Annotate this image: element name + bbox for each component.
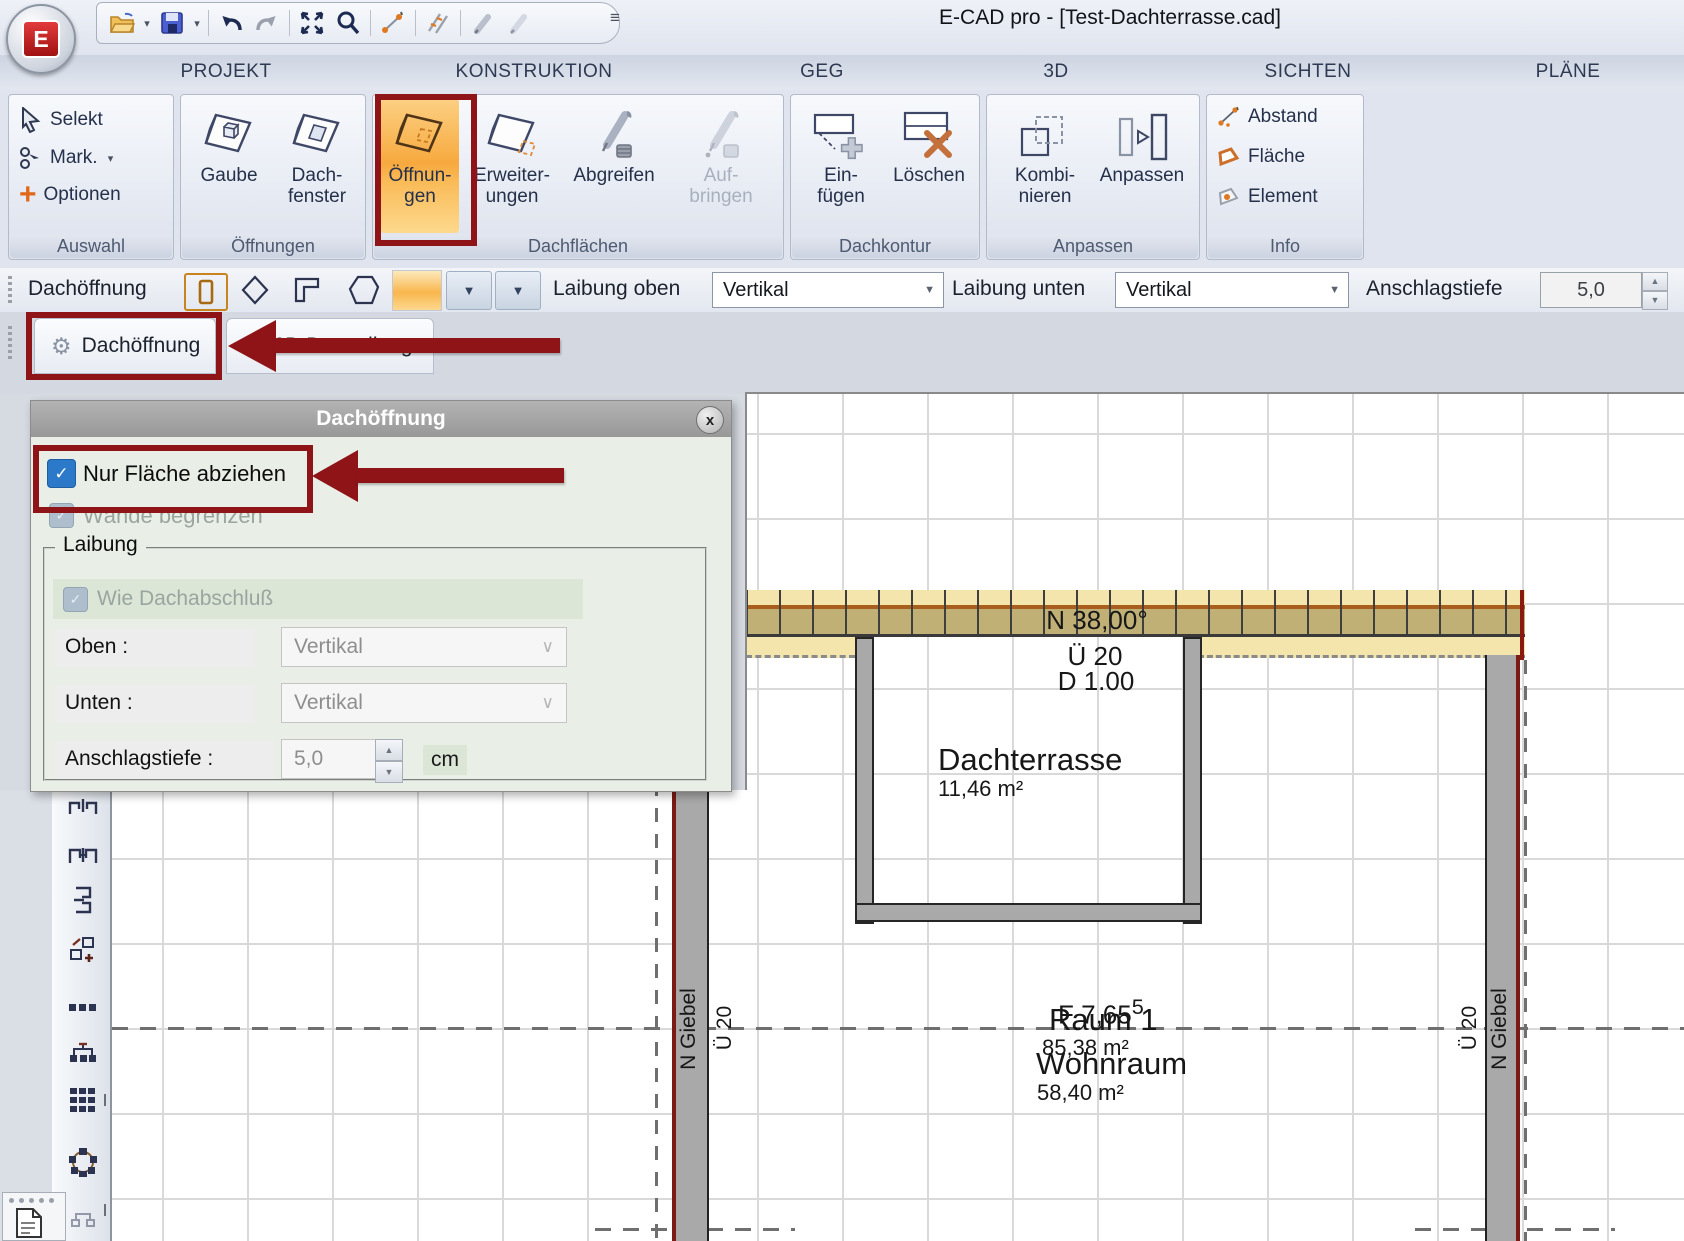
annotation-box-tab xyxy=(26,312,222,380)
save-icon[interactable] xyxy=(155,7,189,39)
shape-rect-button[interactable] xyxy=(184,273,228,311)
separator-tick xyxy=(104,1204,106,1216)
einfuegen-button[interactable]: Ein- fügen xyxy=(799,99,883,231)
terrace-wall-left[interactable] xyxy=(855,637,874,924)
laibung-unten-label: Laibung unten xyxy=(952,277,1085,301)
qat-overflow-icon[interactable]: ≡ xyxy=(610,8,620,28)
group-title: Info xyxy=(1208,234,1362,258)
diamond-shape-icon xyxy=(240,275,270,305)
rect-shape-icon xyxy=(198,279,214,305)
title-bar: ▾ ▾ ≡ E-CAD pro - [Test-Dachterrasse.cad… xyxy=(0,0,1684,55)
gable-right-overhang: Ü 20 xyxy=(1459,965,1481,1091)
app-logo: E xyxy=(22,20,60,58)
group-title: Öffnungen xyxy=(182,234,364,258)
roof-edge-right xyxy=(1520,590,1524,660)
tab-geg[interactable]: GEG xyxy=(722,61,922,83)
room-name-label: Raum 1 xyxy=(1049,1002,1158,1038)
gable-line-right xyxy=(1524,660,1527,1241)
zoom-extents-icon[interactable] xyxy=(295,7,329,39)
loeschen-button[interactable]: Löschen xyxy=(887,99,971,231)
ridge-line xyxy=(112,1027,1684,1030)
oben-select: Vertikal ∨ xyxy=(281,627,567,667)
tab-projekt[interactable]: PROJEKT xyxy=(126,61,326,83)
cm-unit-label: cm xyxy=(423,745,467,775)
group-title: Dachkontur xyxy=(792,234,978,258)
toolbar-title: Dachöffnung xyxy=(28,277,147,301)
blocks-grid-icon[interactable] xyxy=(66,1084,100,1116)
mark-dropdown-caret[interactable]: ▾ xyxy=(105,152,117,165)
copy-add-icon[interactable] xyxy=(66,934,100,966)
dachoeffnung-dialog: Dachöffnung x ✓ Nur Fläche abziehen ✓ Wä… xyxy=(30,400,732,792)
anschlagstiefe-input[interactable]: 5,0 xyxy=(1540,272,1642,308)
redo-icon[interactable] xyxy=(250,7,284,39)
pick-style-icon[interactable] xyxy=(466,7,500,39)
anschlagstiefe-dialog-label: Anschlagstiefe : xyxy=(55,741,275,779)
circular-array-icon[interactable] xyxy=(66,1146,100,1178)
anpassen-icon xyxy=(1114,99,1170,165)
tab-plaene[interactable]: PLÄNE xyxy=(1468,61,1668,83)
style-dropdown-button[interactable]: ▼ xyxy=(495,271,541,310)
spin-up-button[interactable]: ▲ xyxy=(1642,272,1668,291)
checkbox-dachabschluss: ✓ xyxy=(63,587,88,612)
shape-polygon-button[interactable] xyxy=(342,273,386,307)
room-use-label: Wohnraum xyxy=(1036,1046,1187,1082)
gaube-icon xyxy=(200,99,258,165)
save-dropdown-caret[interactable]: ▾ xyxy=(191,17,203,30)
group-info: Abstand Fläche Element Info xyxy=(1206,94,1364,260)
roof-overhang-right xyxy=(1198,637,1525,658)
element-icon xyxy=(1217,185,1241,209)
undo-icon[interactable] xyxy=(214,7,248,39)
chevron-down-icon: ∨ xyxy=(542,637,554,657)
room-use-area-label: 58,40 m² xyxy=(1037,1080,1124,1106)
chevron-down-icon: ▼ xyxy=(924,284,935,296)
loeschen-icon xyxy=(899,99,959,165)
opening-pair-wide-icon[interactable] xyxy=(66,840,100,872)
canvas-top-border xyxy=(745,392,1684,394)
connector-icon[interactable] xyxy=(66,1202,100,1234)
opening-pair-icon[interactable] xyxy=(66,792,100,824)
mini-panel xyxy=(2,1192,66,1241)
annotation-box-oeffnungen xyxy=(375,94,477,246)
dialog-title[interactable]: Dachöffnung xyxy=(31,401,731,437)
blocks-linked-icon[interactable] xyxy=(66,1036,100,1068)
abgreifen-button[interactable]: Abgreifen xyxy=(561,99,667,231)
ribbon: Selekt Mark. ▾ + Optionen Auswahl Gaube … xyxy=(0,90,1684,268)
optionen-button[interactable]: + Optionen xyxy=(19,183,121,207)
wall-bracket-icon[interactable] xyxy=(66,884,100,916)
measure-icon[interactable] xyxy=(376,7,410,39)
kombinieren-icon xyxy=(1018,99,1072,165)
group-dachkontur: Ein- fügen Löschen Dachkontur xyxy=(790,94,980,260)
laibung-unten-select[interactable]: Vertikal ▼ xyxy=(1115,272,1349,308)
thickness-label: D 1.00 xyxy=(1016,666,1176,697)
mark-button[interactable]: Mark. ▾ xyxy=(19,145,117,171)
group-oeffnungen: Gaube Dach- fenster Öffnungen xyxy=(180,94,366,260)
zoom-icon[interactable] xyxy=(331,7,365,39)
gaube-button[interactable]: Gaube xyxy=(187,99,271,231)
unten-label: Unten : xyxy=(55,685,255,723)
tab-konstruktion[interactable]: KONSTRUKTION xyxy=(434,61,634,83)
laibung-oben-label: Laibung oben xyxy=(553,277,680,301)
group-dachflaechen: Öffnun- gen Erweiter- ungen Abgreifen Au… xyxy=(372,94,784,260)
color-swatch-button[interactable] xyxy=(392,270,442,311)
swatch-dropdown-button[interactable]: ▼ xyxy=(446,271,492,310)
terrace-name-label: Dachterrasse xyxy=(938,742,1122,778)
einfuegen-icon xyxy=(811,99,871,165)
window-title: E-CAD pro - [Test-Dachterrasse.cad] xyxy=(810,6,1410,30)
annotation-arrow-tab xyxy=(228,320,276,372)
parallel-copy-icon[interactable] xyxy=(421,7,455,39)
terrace-area-label: 11,46 m² xyxy=(938,776,1023,802)
abstand-button[interactable]: Abstand xyxy=(1217,105,1318,129)
mark-icon xyxy=(19,145,43,171)
abstand-icon xyxy=(1217,105,1241,129)
roof-overhang-left xyxy=(746,637,855,658)
dialog-spin-down: ▼ xyxy=(375,761,403,783)
quick-access-toolbar: ▾ ▾ xyxy=(96,2,620,44)
close-icon[interactable]: x xyxy=(696,406,724,434)
chevron-down-icon: ∨ xyxy=(542,693,554,713)
toolbar-drag-handle[interactable] xyxy=(8,276,12,304)
separator-tick xyxy=(104,1094,106,1106)
laibung-oben-select[interactable]: Vertikal ▼ xyxy=(712,272,944,308)
oben-label: Oben : xyxy=(55,629,255,667)
kombinieren-button[interactable]: Kombi- nieren xyxy=(999,99,1091,231)
open-file-icon[interactable] xyxy=(105,7,139,39)
plus-icon: + xyxy=(19,183,37,207)
drag-handle[interactable] xyxy=(9,1198,54,1203)
anpassen-button[interactable]: Anpassen xyxy=(1095,99,1189,231)
group-title: Auswahl xyxy=(10,234,172,258)
element-button[interactable]: Element xyxy=(1217,185,1318,209)
gable-left-name: N Giebel xyxy=(678,966,700,1092)
dachfenster-icon xyxy=(288,99,346,165)
cursor-icon xyxy=(19,107,43,133)
wall-gable-right[interactable] xyxy=(1485,655,1520,1241)
terrace-wall-bottom[interactable] xyxy=(855,903,1202,922)
blocks-row-icon[interactable] xyxy=(66,992,100,1024)
unten-select: Vertikal ∨ xyxy=(281,683,567,723)
group-auswahl: Selekt Mark. ▾ + Optionen Auswahl xyxy=(8,94,174,260)
shape-diamond-button[interactable] xyxy=(234,273,276,307)
laibung-group-title: Laibung xyxy=(55,533,146,557)
flaeche-icon xyxy=(1217,145,1241,169)
roof-opening-toolbar: Dachöffnung ▼ ▼ Laibung oben Vertikal ▼ … xyxy=(0,268,1684,313)
corner-shape-icon xyxy=(293,276,321,304)
shape-corner-button[interactable] xyxy=(286,273,328,307)
group-anpassen: Kombi- nieren Anpassen Anpassen xyxy=(986,94,1200,260)
abgreifen-icon xyxy=(589,99,639,165)
ribbon-tab-bar: PROJEKT KONSTRUKTION GEG 3D SICHTEN PLÄN… xyxy=(0,55,1684,90)
selekt-button[interactable]: Selekt xyxy=(19,107,103,133)
tabrow-drag-handle[interactable] xyxy=(8,326,12,360)
flaeche-button[interactable]: Fläche xyxy=(1217,145,1305,169)
terrace-wall-right[interactable] xyxy=(1183,637,1202,924)
group-title: Anpassen xyxy=(988,234,1198,258)
polygon-shape-icon xyxy=(348,275,380,305)
aufbringen-button[interactable]: Auf- bringen xyxy=(671,99,771,231)
chevron-down-icon: ▼ xyxy=(1329,284,1340,296)
apply-style-icon[interactable] xyxy=(502,7,536,39)
open-dropdown-caret[interactable]: ▾ xyxy=(141,17,153,30)
gable-left-overhang: Ü 20 xyxy=(714,965,736,1091)
spin-down-button[interactable]: ▼ xyxy=(1642,291,1668,310)
dialog-spin-up: ▲ xyxy=(375,739,403,761)
annotation-arrow-checkbox xyxy=(312,450,358,502)
roof-angle-label: N 38,00° xyxy=(1007,605,1187,636)
gable-right-name: N Giebel xyxy=(1489,966,1511,1092)
document-icon[interactable] xyxy=(15,1207,43,1239)
anschlagstiefe-label: Anschlagstiefe xyxy=(1366,277,1503,301)
app-window: { "app": {"title": "E-CAD pro - [Test-Da… xyxy=(0,0,1684,1241)
erweiterungen-icon xyxy=(483,99,541,165)
tab-sichten[interactable]: SICHTEN xyxy=(1208,61,1408,83)
tab-3d[interactable]: 3D xyxy=(956,61,1156,83)
erweiterungen-button[interactable]: Erweiter- ungen xyxy=(467,99,557,231)
dachfenster-button[interactable]: Dach- fenster xyxy=(275,99,359,231)
annotation-box-checkbox xyxy=(33,445,313,513)
app-menu-button[interactable]: E xyxy=(6,4,76,74)
checkbox-dachabschluss-label: Wie Dachabschluß xyxy=(97,587,273,611)
aufbringen-icon xyxy=(696,99,746,165)
